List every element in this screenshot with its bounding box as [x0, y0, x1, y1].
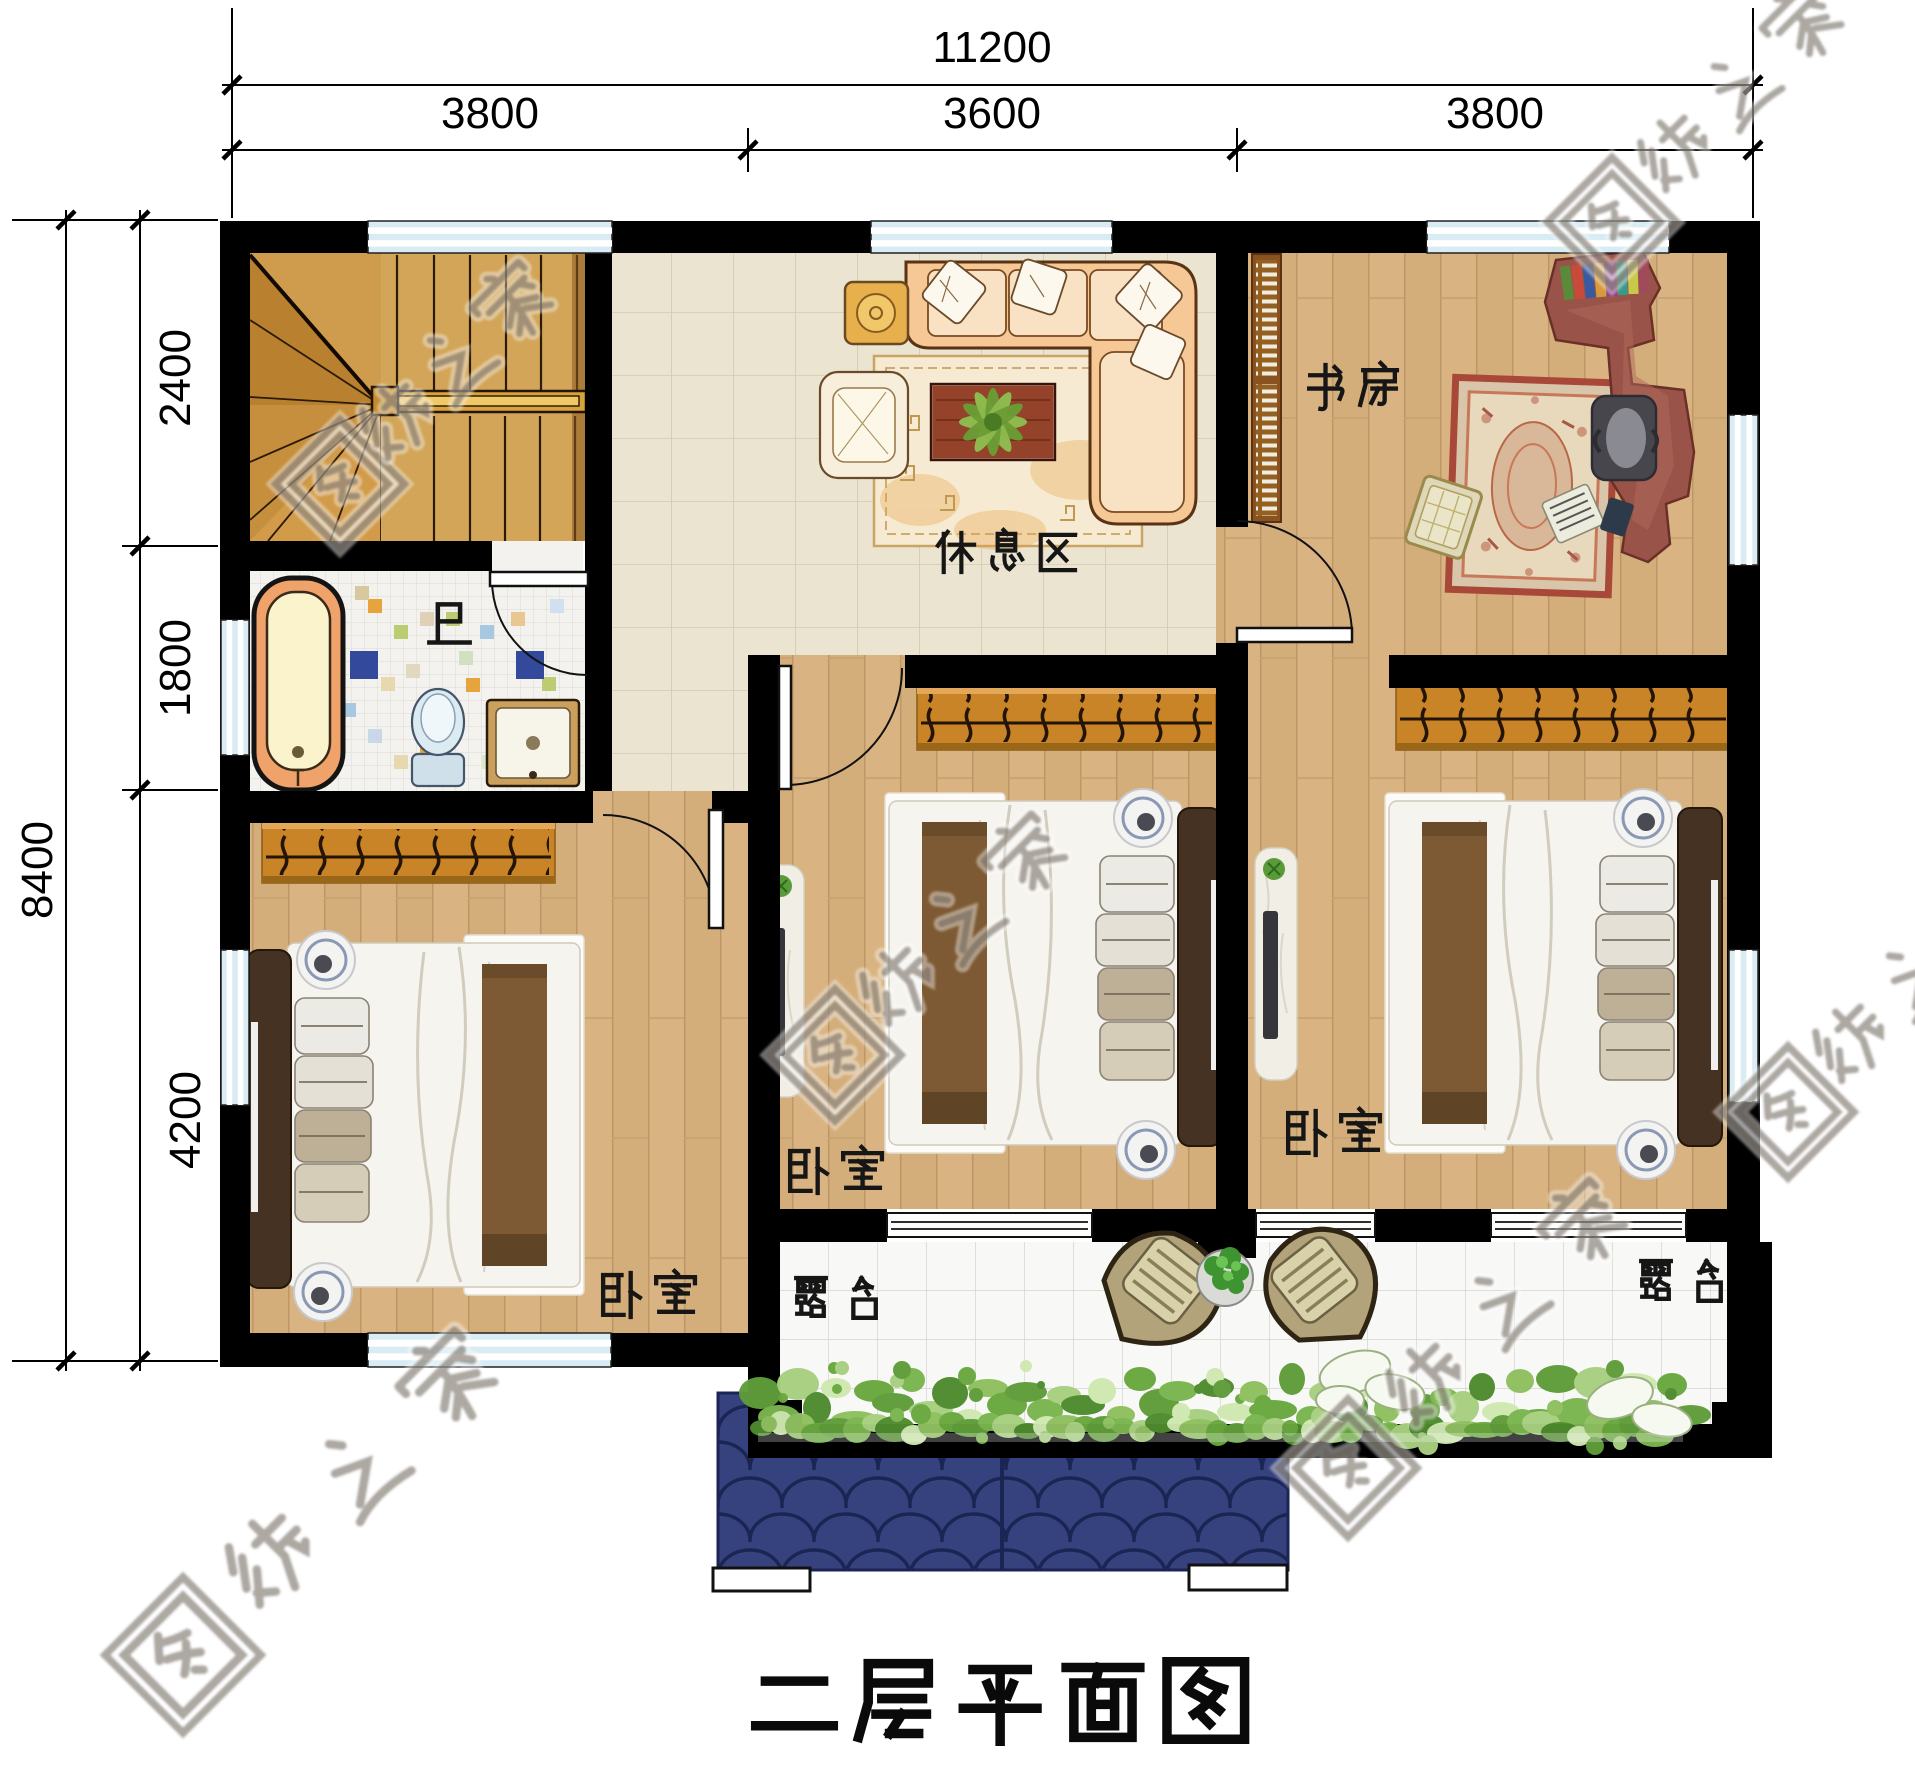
svg-text:3800: 3800: [441, 89, 539, 138]
svg-text:2400: 2400: [151, 329, 200, 427]
svg-text:3600: 3600: [943, 89, 1041, 138]
svg-text:11200: 11200: [932, 23, 1051, 72]
svg-text:4200: 4200: [161, 1071, 210, 1169]
svg-text:1800: 1800: [151, 619, 200, 717]
svg-text:8400: 8400: [13, 821, 62, 919]
svg-text:3800: 3800: [1446, 89, 1544, 138]
